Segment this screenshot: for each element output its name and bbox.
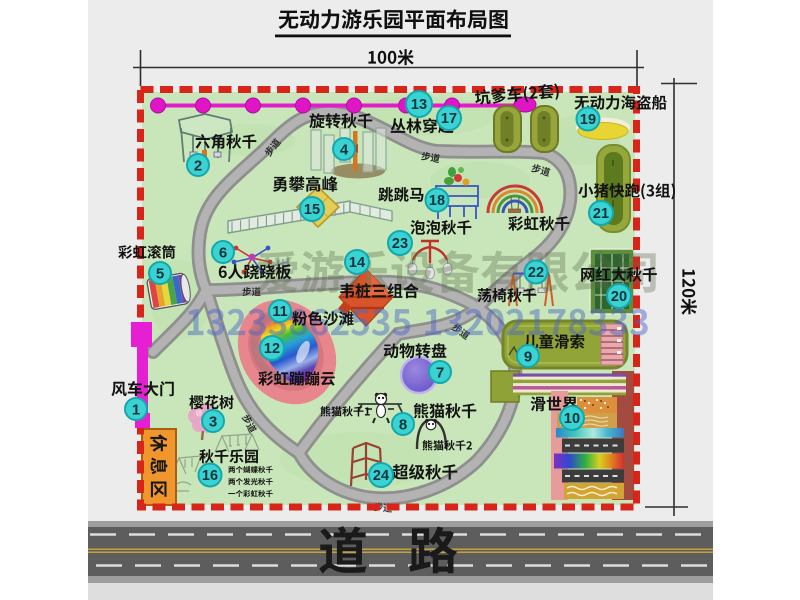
svg-text:4: 4 bbox=[340, 141, 349, 158]
svg-text:2: 2 bbox=[194, 157, 202, 174]
svg-text:6: 6 bbox=[219, 244, 227, 261]
svg-text:13: 13 bbox=[411, 97, 427, 113]
svg-text:10: 10 bbox=[564, 411, 580, 427]
svg-text:17: 17 bbox=[441, 111, 457, 127]
svg-text:9: 9 bbox=[524, 348, 532, 365]
svg-text:20: 20 bbox=[611, 289, 627, 305]
svg-text:15: 15 bbox=[304, 202, 320, 218]
svg-text:8: 8 bbox=[399, 416, 407, 433]
svg-text:1: 1 bbox=[132, 401, 140, 418]
svg-text:14: 14 bbox=[349, 255, 365, 271]
svg-text:22: 22 bbox=[528, 265, 544, 281]
svg-text:11: 11 bbox=[272, 304, 287, 320]
svg-text:21: 21 bbox=[593, 206, 609, 222]
svg-text:18: 18 bbox=[429, 193, 445, 209]
svg-text:19: 19 bbox=[580, 112, 596, 128]
svg-text:16: 16 bbox=[202, 468, 218, 484]
svg-text:24: 24 bbox=[373, 468, 389, 484]
svg-text:3: 3 bbox=[209, 413, 217, 430]
svg-text:7: 7 bbox=[436, 364, 444, 381]
svg-text:12: 12 bbox=[264, 341, 280, 357]
svg-text:23: 23 bbox=[392, 236, 408, 252]
svg-text:5: 5 bbox=[156, 265, 164, 282]
